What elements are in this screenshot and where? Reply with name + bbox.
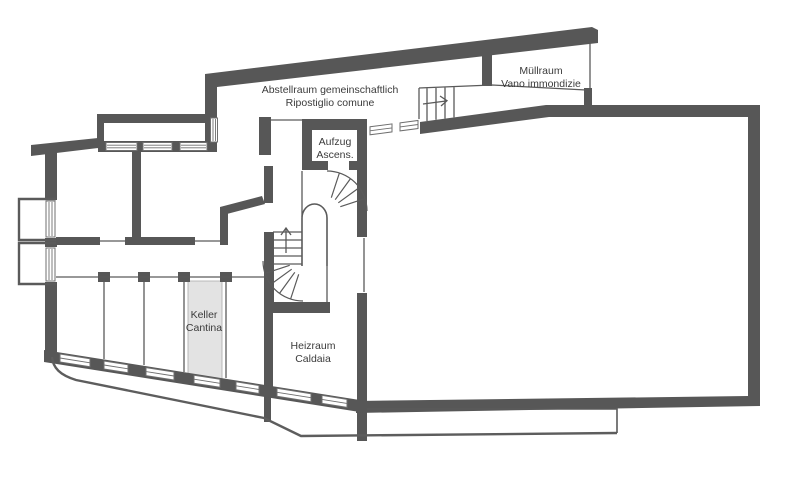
stair-treads-straight <box>273 232 302 264</box>
label-aufzug-de: Aufzug <box>319 136 352 148</box>
annex-outline <box>367 409 617 433</box>
window <box>211 118 218 142</box>
label-keller-it: Cantina <box>186 322 222 334</box>
label-aufzug-it: Ascens. <box>316 149 353 161</box>
muellraum-stub <box>584 88 592 107</box>
stair-block-right-wall <box>357 119 367 441</box>
main-room-right-bottom-wall <box>356 117 760 413</box>
stair-newel <box>302 204 327 266</box>
label-heizraum-de: Heizraum <box>291 340 336 352</box>
window <box>106 143 137 151</box>
lightwell-top-walls <box>97 114 217 144</box>
label-muellraum-it: Vano immondizie <box>501 78 581 90</box>
window <box>143 143 172 151</box>
floor-plan-page: Abstellraum gemeinschaftlich Ripostiglio… <box>0 0 800 482</box>
label-muellraum-de: Müllraum <box>519 65 562 77</box>
main-staircase <box>263 171 367 301</box>
label-abstellraum-de: Abstellraum gemeinschaftlich <box>262 84 399 96</box>
window <box>46 201 55 237</box>
main-room-top-wall <box>420 105 760 134</box>
label-keller-de: Keller <box>191 309 218 321</box>
label-heizraum-it: Caldaia <box>295 353 331 365</box>
window <box>180 143 207 151</box>
heizraum-left-wall <box>264 313 273 422</box>
floor-plan-svg: Abstellraum gemeinschaftlich Ripostiglio… <box>0 0 800 482</box>
label-abstellraum-it: Ripostiglio comune <box>286 97 375 109</box>
interior-walls <box>56 141 232 282</box>
muellraum-left-wall <box>482 46 492 86</box>
window <box>46 248 55 281</box>
